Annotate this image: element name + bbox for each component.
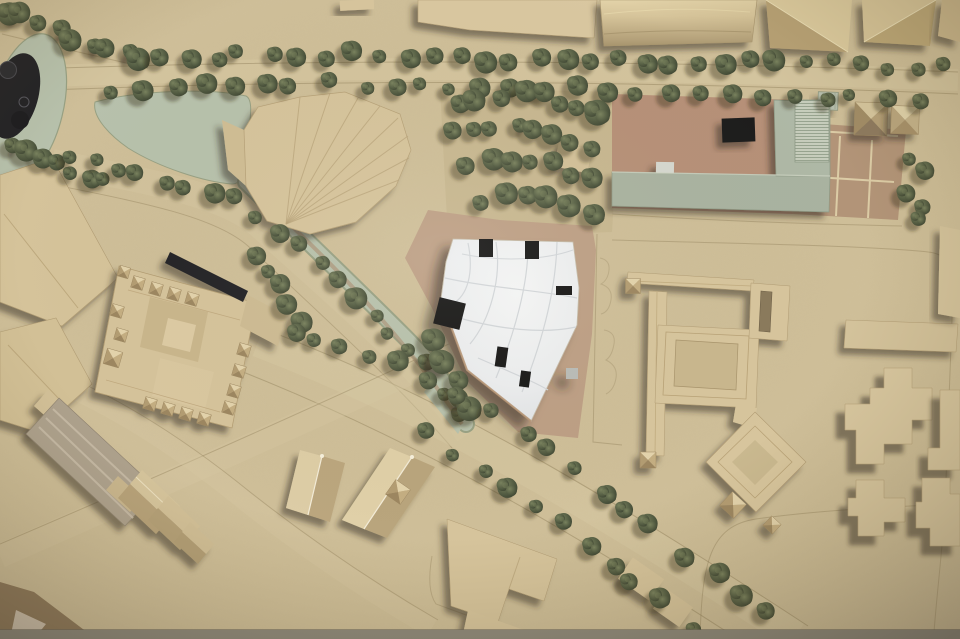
photo-overlays xyxy=(0,0,960,639)
architectural-model-photo: Top-down photograph of a cardboard archi… xyxy=(0,0,960,639)
model-scene xyxy=(0,0,960,639)
vignette xyxy=(0,0,960,639)
